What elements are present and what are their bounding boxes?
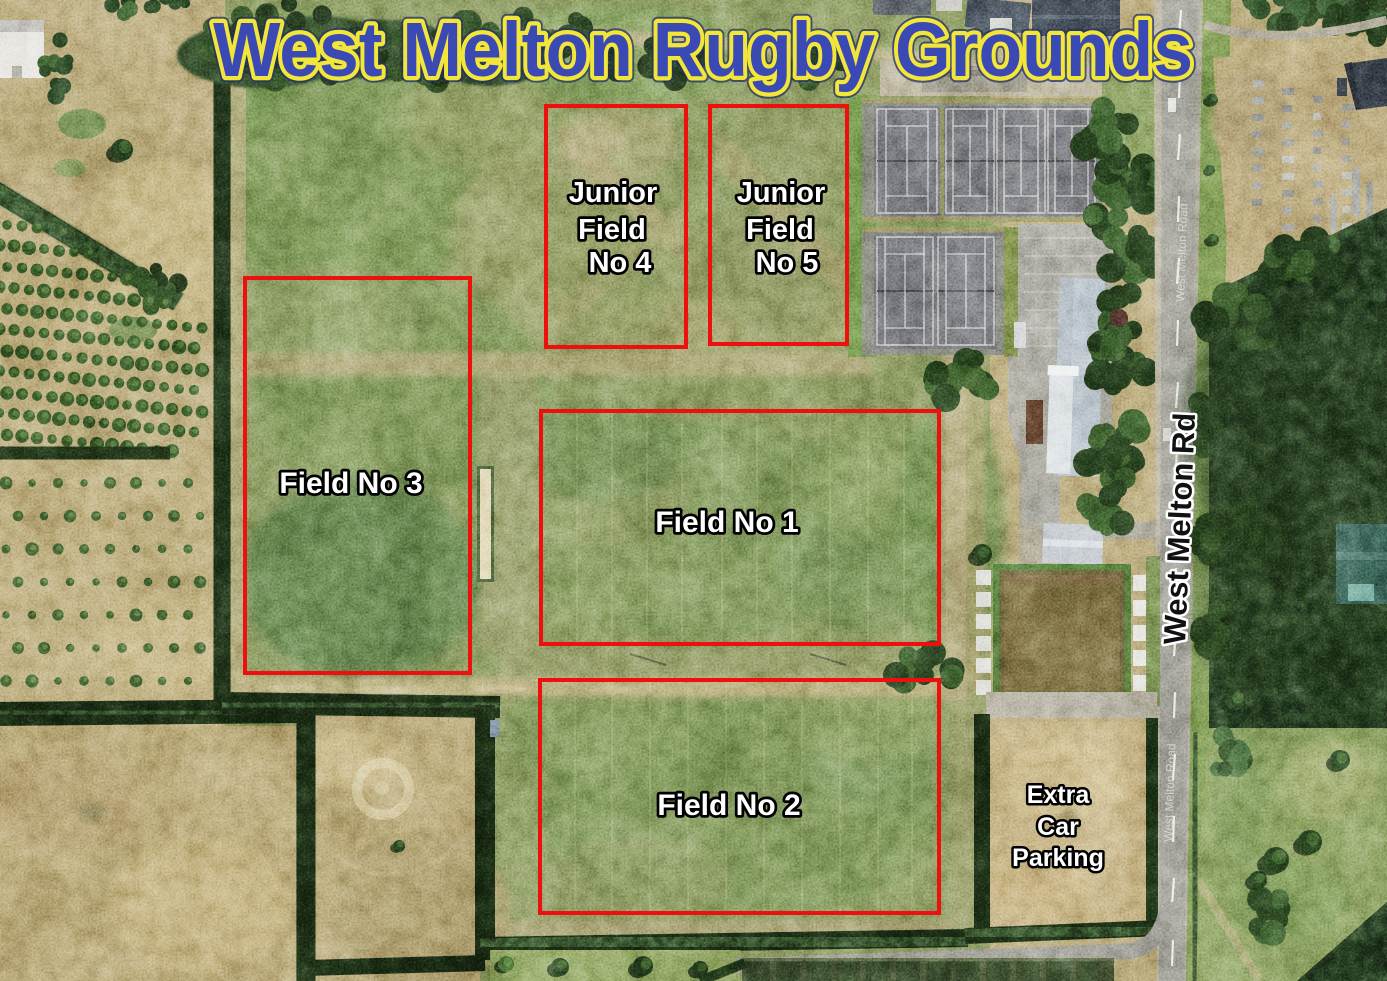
svg-text:Field No 1: Field No 1 bbox=[655, 506, 798, 539]
svg-text:Field No 3: Field No 3 bbox=[279, 467, 422, 500]
svg-text:West Melton Rugby Grounds: West Melton Rugby Grounds bbox=[213, 7, 1193, 93]
svg-text:Field No 2: Field No 2 bbox=[657, 789, 800, 822]
